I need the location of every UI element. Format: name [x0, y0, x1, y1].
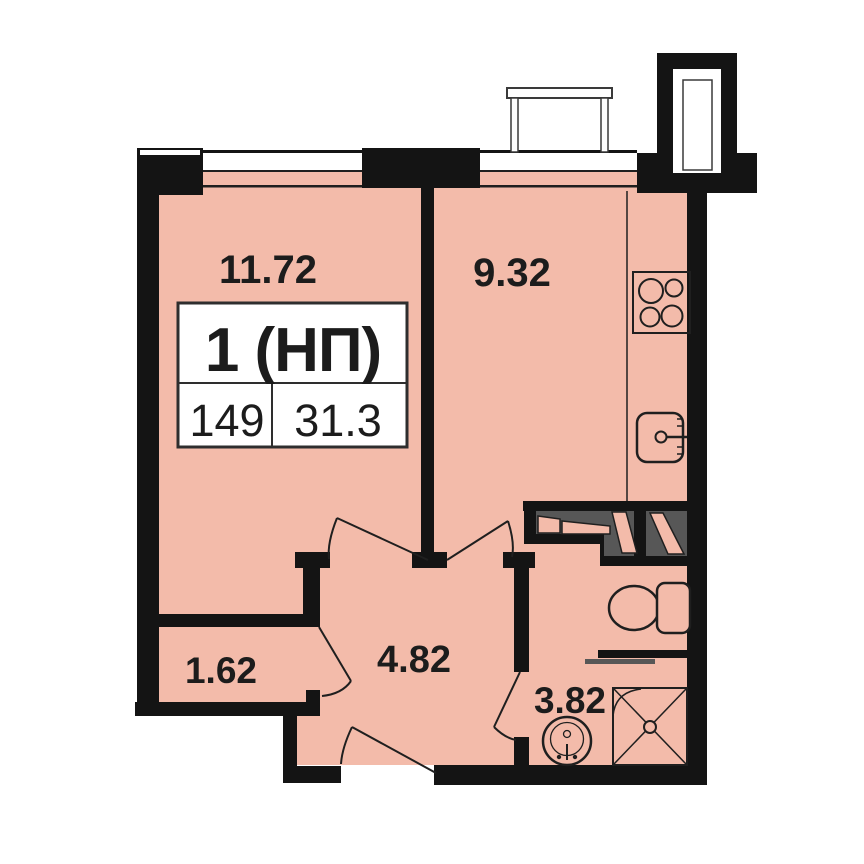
- floor-plan-page: 11.72 9.32 1.62 4.82 3.82 1 (НП) 149 31.…: [0, 0, 864, 864]
- toilet-tank: [657, 583, 690, 633]
- flat-type-label: 1 (НП): [205, 316, 381, 385]
- room-area-label-hall: 4.82: [377, 639, 451, 681]
- wall-storage-top: [150, 614, 320, 627]
- wall-storage-bottom: [135, 702, 320, 716]
- wall-bottom-left: [283, 766, 341, 783]
- basin-tap-dot: [573, 755, 577, 759]
- wall-niche-left-h: [524, 534, 604, 544]
- wall-left: [137, 188, 159, 716]
- window-mid-line: [203, 170, 362, 172]
- wall-step-vertical: [283, 714, 297, 768]
- window-outer-line: [203, 150, 362, 153]
- room-area-label-bathroom: 3.82: [534, 680, 606, 721]
- wall-niche-bottom: [600, 556, 690, 566]
- shaft-left-leg: [657, 53, 673, 193]
- shower-drain: [644, 721, 656, 733]
- sink-faucet-knob: [656, 432, 667, 443]
- window-glass: [203, 153, 362, 170]
- wall-flange-right: [735, 153, 757, 193]
- window-glass: [480, 153, 637, 170]
- wardrobe-door-leaf: [538, 516, 560, 533]
- wall-right: [687, 153, 707, 785]
- shelf-bar-dark: [598, 650, 687, 658]
- basin-faucet: [564, 731, 571, 738]
- balcony-railing-icon: [507, 88, 612, 152]
- railing-post-right: [601, 98, 608, 152]
- floor-plan-svg: 11.72 9.32 1.62 4.82 3.82 1 (НП) 149 31.…: [0, 0, 864, 864]
- flat-number-label: 149: [189, 395, 264, 446]
- basin-tap-dot: [557, 755, 561, 759]
- railing-post-left: [511, 98, 518, 152]
- wall-bathroom-left: [514, 552, 529, 672]
- window-mid-line: [480, 170, 637, 172]
- shaft-duct: [683, 80, 712, 170]
- window-inner-line: [480, 185, 637, 188]
- ventilation-shaft-icon: [657, 53, 737, 193]
- wall-flange-left: [637, 153, 659, 193]
- shaft-right-leg: [721, 53, 737, 193]
- toilet-bowl: [609, 586, 659, 630]
- shelf-bar-gray: [585, 659, 655, 664]
- wall-niche-divider: [634, 503, 646, 564]
- total-area-label: 31.3: [294, 395, 382, 446]
- wall-living-kitchen: [421, 183, 434, 555]
- title-block: 1 (НП) 149 31.3: [178, 303, 407, 447]
- jamb-storage: [306, 690, 320, 702]
- window-outer-line: [480, 150, 637, 153]
- room-area-label-kitchen: 9.32: [473, 251, 551, 295]
- room-area-label-living: 11.72: [219, 248, 317, 292]
- window-inner-line: [203, 185, 362, 188]
- wall-top-left-corner: [137, 148, 203, 195]
- railing-bar: [507, 88, 612, 98]
- wall-bottom-right: [434, 765, 707, 785]
- toilet-icon: [609, 583, 690, 633]
- wall-kitchen-bathroom: [523, 501, 707, 511]
- room-area-label-storage: 1.62: [185, 650, 257, 691]
- wall-bathroom-left-lower: [514, 737, 529, 767]
- wall-top-pier: [362, 148, 480, 188]
- wall-cap-strip: [140, 150, 200, 155]
- shaft-base: [673, 173, 721, 193]
- washbasin-icon: [543, 717, 591, 765]
